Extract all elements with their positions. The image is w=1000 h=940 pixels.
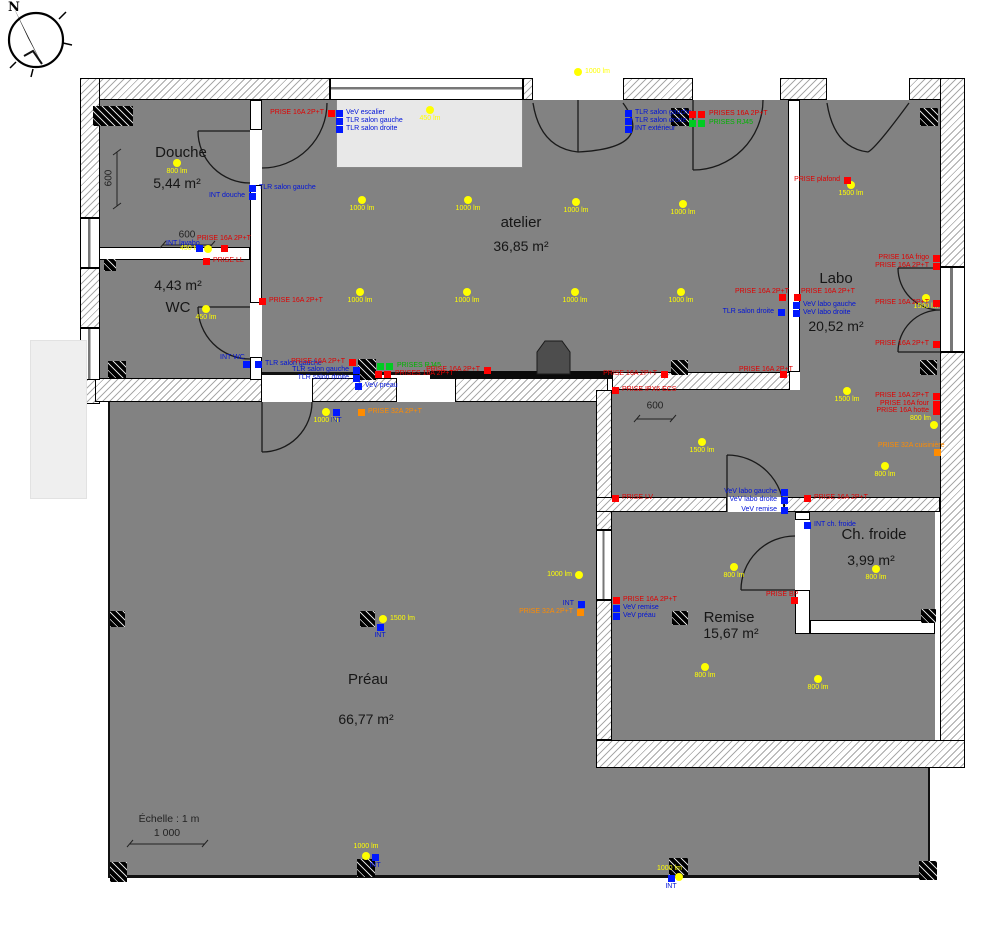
socket-16a[interactable] xyxy=(612,387,619,394)
device-label: INT xyxy=(563,600,574,607)
switch[interactable] xyxy=(336,126,343,133)
device-label: PRISE 16A 2P+T xyxy=(426,366,480,373)
socket-16a[interactable] xyxy=(933,401,940,408)
device-label: INT lavabo xyxy=(166,240,200,247)
rj45-socket-double[interactable] xyxy=(698,120,705,127)
room-name: atelier xyxy=(501,214,542,231)
ceiling-light[interactable] xyxy=(464,196,472,204)
light-label: 800 lm xyxy=(723,572,744,579)
device-label: TLR salon gauche xyxy=(635,109,692,116)
device-label: INT douche xyxy=(209,192,245,199)
dimension-label: 600 xyxy=(104,170,115,187)
device-label: TLR salon droite xyxy=(298,374,349,381)
ceiling-light[interactable] xyxy=(426,106,434,114)
socket-16a-double[interactable] xyxy=(689,111,696,118)
ceiling-light[interactable] xyxy=(356,288,364,296)
device-label: PRISE LL xyxy=(213,257,244,264)
switch[interactable] xyxy=(625,126,632,133)
socket-16a[interactable] xyxy=(794,294,801,301)
ceiling-light[interactable] xyxy=(463,288,471,296)
switch[interactable] xyxy=(336,118,343,125)
device-label: INT xyxy=(665,883,676,890)
ceiling-light[interactable] xyxy=(572,198,580,206)
rj45-socket-double[interactable] xyxy=(689,120,696,127)
light-label: 450 lm xyxy=(419,115,440,122)
room-name: Ch. froide xyxy=(841,526,906,543)
room-area: 15,67 m² xyxy=(703,625,758,641)
dimension-label: 600 xyxy=(647,401,664,412)
device-label: TLR salon gauche xyxy=(259,184,316,191)
device-label: PRISE 16A 2P+T xyxy=(735,288,789,295)
socket-32a[interactable] xyxy=(577,609,584,616)
dimension-label: 600 xyxy=(179,230,196,241)
switch[interactable] xyxy=(778,309,785,316)
device-label: PRISE 16A 2P+T xyxy=(603,370,657,377)
rj45-socket-double[interactable] xyxy=(386,363,393,370)
device-label: PRISE 16A 2P+T xyxy=(801,288,855,295)
switch[interactable] xyxy=(668,875,675,882)
device-label: VeV labo gauche xyxy=(724,488,777,495)
device-label: PRISE 32A cuisinière xyxy=(878,442,945,449)
socket-16a[interactable] xyxy=(844,177,851,184)
socket-16a[interactable] xyxy=(933,263,940,270)
socket-16a[interactable] xyxy=(804,495,811,502)
switch[interactable] xyxy=(336,110,343,117)
switch[interactable] xyxy=(249,193,256,200)
switch[interactable] xyxy=(625,118,632,125)
light-label: 1000 lm xyxy=(547,571,572,578)
switch[interactable] xyxy=(249,185,256,192)
light-label: 1000 lm xyxy=(456,205,481,212)
device-label: PRISE 32A 2P+T xyxy=(519,608,573,615)
switch[interactable] xyxy=(243,361,250,368)
room-name: Remise xyxy=(704,609,755,626)
scale-value: 1 000 xyxy=(154,827,180,839)
device-label: PRISE 16A 2P+T xyxy=(875,340,929,347)
socket-32a[interactable] xyxy=(358,409,365,416)
switch[interactable] xyxy=(613,605,620,612)
rj45-socket-double[interactable] xyxy=(377,363,384,370)
socket-16a[interactable] xyxy=(259,298,266,305)
room-name: WC xyxy=(166,299,191,316)
switch[interactable] xyxy=(355,383,362,390)
device-label: TLR salon droite xyxy=(635,117,686,124)
device-label: INT WC xyxy=(220,354,245,361)
socket-16a[interactable] xyxy=(933,393,940,400)
socket-16a[interactable] xyxy=(328,110,335,117)
device-label: PRISE plafond xyxy=(794,176,840,183)
socket-16a-double[interactable] xyxy=(698,111,705,118)
switch[interactable] xyxy=(353,367,360,374)
device-label: PRISE 32A 2P+T xyxy=(368,408,422,415)
device-label: PRISES RJ45 xyxy=(709,119,753,126)
room-area: 66,77 m² xyxy=(338,711,393,727)
ceiling-light[interactable] xyxy=(843,387,851,395)
compass-north-label: N xyxy=(8,0,20,15)
light-label: 450 lm xyxy=(195,314,216,321)
switch[interactable] xyxy=(781,489,788,496)
scale-label: Échelle : 1 m xyxy=(139,813,200,825)
light-label: 1500 lm xyxy=(835,396,860,403)
light-label: 800 lm xyxy=(874,471,895,478)
switch[interactable] xyxy=(255,361,262,368)
device-label: PRISE 16A 2P+T xyxy=(875,392,929,399)
ceiling-light[interactable] xyxy=(679,200,687,208)
device-label: VeV préau xyxy=(623,612,656,619)
ceiling-light[interactable] xyxy=(358,196,366,204)
light-label: 800 lm xyxy=(807,684,828,691)
device-label: VeV labo gauche xyxy=(803,301,856,308)
light-label: 1000 lm xyxy=(563,297,588,304)
device-label: VeV labo droite xyxy=(730,496,777,503)
socket-16a[interactable] xyxy=(484,367,491,374)
device-label: PRISE 16A 2P+T xyxy=(739,366,793,373)
socket-16a[interactable] xyxy=(612,495,619,502)
ceiling-light[interactable] xyxy=(675,873,683,881)
device-label: PRISE 16A 2P+T xyxy=(270,109,324,116)
ceiling-light[interactable] xyxy=(322,408,330,416)
socket-16a[interactable] xyxy=(661,371,668,378)
switch[interactable] xyxy=(625,110,632,117)
switch[interactable] xyxy=(333,409,340,416)
room-name: Labo xyxy=(819,270,852,287)
socket-16a[interactable] xyxy=(933,408,940,415)
switch[interactable] xyxy=(804,522,811,529)
light-label: 1000 lm xyxy=(348,297,373,304)
room-name: Douche xyxy=(155,144,207,161)
device-label: TLR salon gauche xyxy=(346,117,403,124)
light-label: 1000 lm xyxy=(455,297,480,304)
socket-32a[interactable] xyxy=(934,449,941,456)
socket-16a[interactable] xyxy=(933,341,940,348)
floor-plan: N Échelle : 1 m 1 000 800 lm450 lm450 lm… xyxy=(0,0,1000,940)
ceiling-light[interactable] xyxy=(701,663,709,671)
switch[interactable] xyxy=(793,310,800,317)
room-area: 5,44 m² xyxy=(153,175,200,191)
device-label: VeV escalier xyxy=(346,109,385,116)
light-label: 1000 lm xyxy=(564,207,589,214)
device-label: PRISE LV xyxy=(622,494,653,501)
switch[interactable] xyxy=(793,302,800,309)
ceiling-light[interactable] xyxy=(677,288,685,296)
socket-16a[interactable] xyxy=(933,300,940,307)
light-label: 1500 lm xyxy=(390,615,415,622)
device-label: PRISE 16A 2P+T xyxy=(875,299,929,306)
switch[interactable] xyxy=(372,854,379,861)
device-label: INT xyxy=(369,862,380,869)
light-label: 800 lm xyxy=(694,672,715,679)
ceiling-light[interactable] xyxy=(574,68,582,76)
light-label: 800 lm xyxy=(910,415,931,422)
ceiling-light[interactable] xyxy=(881,462,889,470)
ceiling-light[interactable] xyxy=(730,563,738,571)
device-label: PRISE 16A 2P+T xyxy=(875,262,929,269)
device-label: VeV préau xyxy=(365,382,398,389)
socket-16a-double[interactable] xyxy=(384,371,391,378)
room-name: Préau xyxy=(348,671,388,688)
device-label: INT xyxy=(374,632,385,639)
room-area: 3,99 m² xyxy=(847,552,894,568)
ceiling-light[interactable] xyxy=(362,852,370,860)
socket-16a[interactable] xyxy=(203,258,210,265)
ceiling-light[interactable] xyxy=(202,305,210,313)
switch[interactable] xyxy=(613,613,620,620)
ceiling-light[interactable] xyxy=(575,571,583,579)
device-label: PRISE 16A 2P+T xyxy=(814,494,868,501)
ceiling-light[interactable] xyxy=(930,421,938,429)
light-label: 1000 lm xyxy=(671,209,696,216)
device-label: VeV labo droite xyxy=(803,309,850,316)
switch[interactable] xyxy=(578,601,585,608)
device-label: INT xyxy=(330,417,341,424)
room-area: 36,85 m² xyxy=(493,238,548,254)
device-label: TLR salon gauche xyxy=(292,366,349,373)
room-area: 20,52 m² xyxy=(808,318,863,334)
device-label: VeV remise xyxy=(623,604,659,611)
device-label: PRISE IPX6 ECS xyxy=(622,386,676,393)
ceiling-light[interactable] xyxy=(204,245,212,253)
light-label: 1000 lm xyxy=(350,205,375,212)
device-label: TLR salon droite xyxy=(346,125,397,132)
socket-16a[interactable] xyxy=(221,245,228,252)
light-label: 800 lm xyxy=(865,574,886,581)
switch[interactable] xyxy=(353,375,360,382)
device-label: PRISE 16A 2P+T xyxy=(269,297,323,304)
device-label: PRISE 16A frigo xyxy=(878,254,929,261)
socket-16a[interactable] xyxy=(349,359,356,366)
device-label: PRISE 16A hotte xyxy=(876,407,929,414)
device-label: PRISE 16A 2P+T xyxy=(197,235,251,242)
ceiling-light[interactable] xyxy=(814,675,822,683)
switch[interactable] xyxy=(781,507,788,514)
light-label: 1500 lm xyxy=(839,190,864,197)
device-label: PRISE BP xyxy=(766,591,798,598)
device-label: TLR salon droite xyxy=(723,308,774,315)
room-area: 4,43 m² xyxy=(154,277,201,293)
device-label: INT extérieur xyxy=(635,125,675,132)
light-label: 1000 lm xyxy=(354,843,379,850)
ceiling-light[interactable] xyxy=(379,615,387,623)
plan-symbols: N Échelle : 1 m 1 000 800 lm450 lm450 lm… xyxy=(0,0,1000,940)
light-label: 1000 lm xyxy=(585,68,610,75)
socket-16a[interactable] xyxy=(613,597,620,604)
ceiling-light[interactable] xyxy=(698,438,706,446)
switch[interactable] xyxy=(377,624,384,631)
socket-16a-double[interactable] xyxy=(375,371,382,378)
device-label: VeV remise xyxy=(741,506,777,513)
light-label: 1000 lm xyxy=(669,297,694,304)
light-label: 1500 lm xyxy=(690,447,715,454)
device-label: PRISES 16A 2P+T xyxy=(709,110,768,117)
device-label: PRISE 16A 2P+T xyxy=(291,358,345,365)
device-label: PRISE 16A 2P+T xyxy=(623,596,677,603)
socket-16a[interactable] xyxy=(933,255,940,262)
ceiling-light[interactable] xyxy=(571,288,579,296)
switch[interactable] xyxy=(781,497,788,504)
light-label: 1000 lm xyxy=(657,865,682,872)
